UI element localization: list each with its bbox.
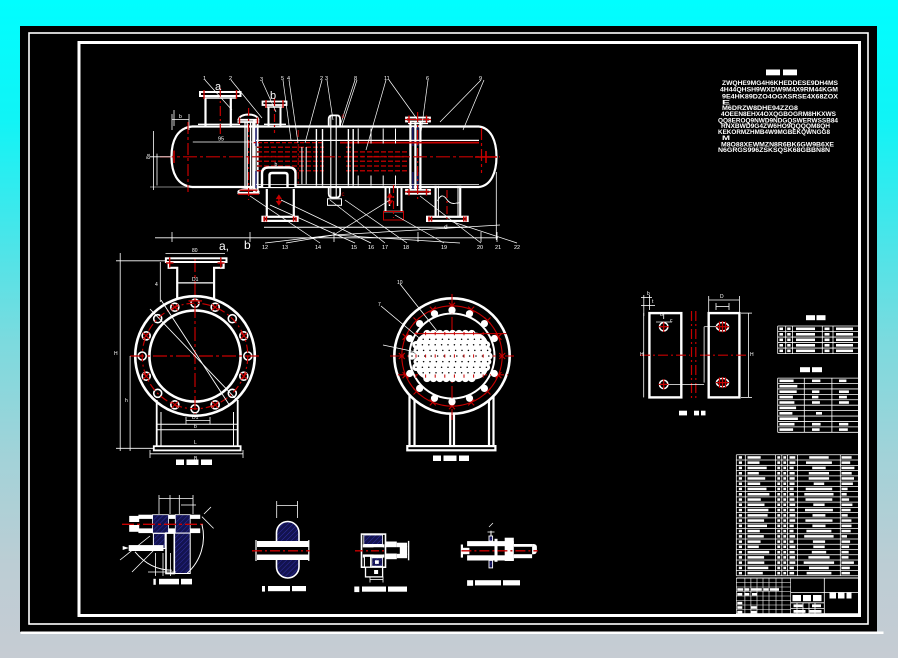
svg-text:13: 13 — [282, 245, 288, 251]
svg-text:KEKORMZHMB4W9MGBEKQWNGG8: KEKORMZHMB4W9MGBEKQWNGG8 — [718, 129, 831, 136]
svg-text:18: 18 — [403, 245, 409, 251]
svg-text:a: a — [215, 81, 222, 93]
svg-text:b: b — [194, 424, 197, 430]
svg-text:H: H — [114, 351, 118, 357]
svg-text:10: 10 — [397, 280, 403, 286]
svg-text:14: 14 — [315, 245, 321, 251]
svg-text:11: 11 — [384, 76, 390, 82]
svg-text:12: 12 — [262, 245, 268, 251]
svg-text:D1: D1 — [192, 277, 199, 283]
svg-text:c: c — [342, 192, 345, 198]
svg-text:d: d — [444, 224, 448, 231]
svg-text:22: 22 — [514, 245, 520, 251]
svg-text:3: 3 — [325, 76, 328, 82]
svg-text:2: 2 — [320, 76, 323, 82]
svg-text:1: 1 — [203, 76, 206, 82]
svg-text:4: 4 — [155, 282, 158, 288]
svg-text:2: 2 — [229, 76, 232, 82]
svg-text:8: 8 — [354, 76, 357, 82]
svg-text:d: d — [660, 312, 663, 318]
svg-text:15: 15 — [351, 245, 357, 251]
svg-text:3: 3 — [260, 77, 263, 83]
svg-text:80: 80 — [192, 248, 198, 254]
svg-text:5: 5 — [281, 76, 284, 82]
svg-text:D1: D1 — [192, 415, 199, 421]
svg-text:6: 6 — [426, 76, 429, 82]
svg-text:H: H — [750, 352, 754, 358]
svg-text:20: 20 — [477, 245, 483, 251]
svg-text:4: 4 — [287, 76, 290, 82]
svg-text:16: 16 — [368, 245, 374, 251]
svg-text:8x: 8x — [146, 153, 152, 159]
svg-text:b: b — [179, 114, 182, 120]
svg-text:c: c — [342, 114, 345, 120]
svg-text:L: L — [194, 440, 197, 446]
svg-text:a,: a, — [219, 239, 229, 253]
svg-text:h: h — [125, 398, 128, 404]
svg-text:D: D — [720, 294, 724, 300]
svg-text:b: b — [270, 90, 276, 102]
svg-text:19: 19 — [441, 245, 447, 251]
svg-text:H: H — [640, 352, 644, 358]
svg-text:95: 95 — [218, 137, 224, 143]
svg-text:17: 17 — [382, 245, 388, 251]
svg-text:b: b — [647, 291, 650, 297]
svg-text:b: b — [275, 162, 278, 168]
svg-text:9E4HK89DZO4OGXSRSE4X68ZOX: 9E4HK89DZO4OGXSRSE4X68ZOX — [722, 93, 839, 100]
svg-text:N6GRGS996ZSKSQSK68GBBN8N: N6GRGS996ZSKSQSK68GBBN8N — [718, 147, 831, 154]
svg-text:9: 9 — [479, 76, 482, 82]
svg-text:7: 7 — [378, 302, 381, 308]
svg-text:21: 21 — [495, 245, 501, 251]
